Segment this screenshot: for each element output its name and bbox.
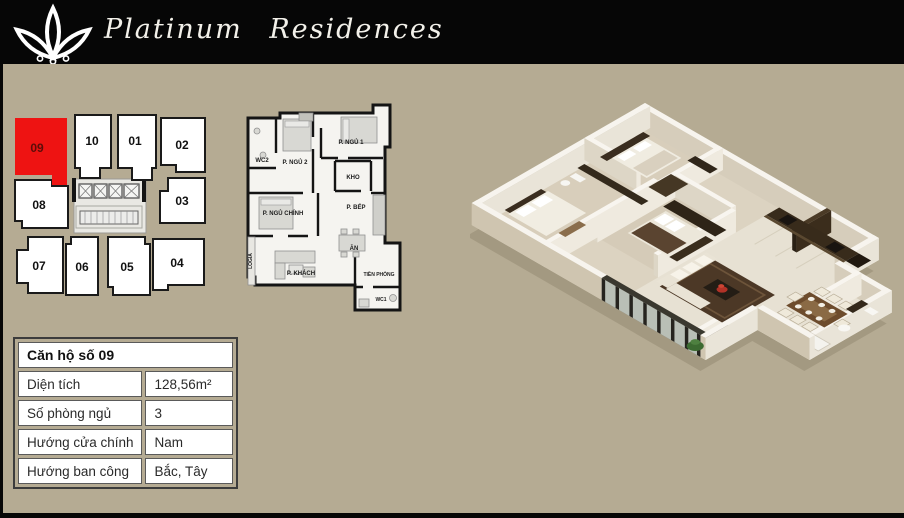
spec-value-door-direction: Nam [145, 429, 233, 455]
unit-08-label[interactable]: 08 [32, 198, 46, 212]
page-title: Platinum Residences [104, 14, 444, 45]
room-label-living: P. KHÁCH [287, 270, 315, 277]
spec-label-bedrooms: Số phòng ngủ [18, 400, 142, 426]
spec-value-area: 128,56m² [145, 371, 233, 397]
table-row: Diện tích 128,56m² [18, 371, 233, 397]
unit-01-label[interactable]: 01 [128, 134, 142, 148]
page: Platinum Residences [0, 0, 904, 518]
table-header-row: Căn hộ số 09 [18, 342, 233, 368]
footer-bar [0, 513, 904, 518]
unit-03-label[interactable]: 03 [175, 194, 189, 208]
unit-06-label[interactable]: 06 [75, 260, 89, 274]
unit-09-label[interactable]: 09 [30, 141, 44, 155]
building-key-plan: 09 10 01 02 08 03 07 06 05 04 [8, 92, 208, 305]
floor-plan-3d-render [470, 80, 900, 390]
room-label-wc2: WC2 [255, 158, 269, 164]
room-label-storage: KHO [346, 175, 360, 181]
table-row: Hướng ban công Bắc, Tây [18, 458, 233, 484]
room-label-logia: LOGIA [248, 253, 254, 269]
table-row: Số phòng ngủ 3 [18, 400, 233, 426]
table-row: Hướng cửa chính Nam [18, 429, 233, 455]
unit-05-label[interactable]: 05 [120, 260, 134, 274]
unit-02-label[interactable]: 02 [175, 138, 189, 152]
room-label-bedroom1: P. NGỦ 1 [339, 139, 365, 146]
unit-04-label[interactable]: 04 [170, 256, 184, 270]
room-label-bedroom2: P. NGỦ 2 [283, 159, 309, 166]
room-label-entrance: TIỀN PHÒNG [363, 270, 394, 278]
header-bar: Platinum Residences [0, 0, 904, 64]
room-label-kitchen: P. BẾP [347, 204, 366, 211]
spec-label-door-direction: Hướng cửa chính [18, 429, 142, 455]
room-label-dining: ĂN [350, 245, 359, 252]
spec-value-bedrooms: 3 [145, 400, 233, 426]
elevator-core [72, 178, 146, 233]
lotus-icon [6, 2, 100, 64]
unit-10-label[interactable]: 10 [85, 134, 99, 148]
apartment-info-table: Căn hộ số 09 Diện tích 128,56m² Số phòng… [13, 337, 238, 489]
spec-value-balcony-direction: Bắc, Tây [145, 458, 233, 484]
floor-plan-2d: WC2 P. NGỦ 2 P. NGỦ 1 KHO P. NGỦ CHÍNH P… [243, 93, 413, 318]
spec-label-area: Diện tích [18, 371, 142, 397]
apartment-title: Căn hộ số 09 [18, 342, 233, 368]
room-label-master-bedroom: P. NGỦ CHÍNH [263, 209, 304, 217]
room-label-wc1: WC1 [375, 297, 386, 303]
unit-07-label[interactable]: 07 [32, 259, 46, 273]
left-border [0, 64, 3, 518]
spec-label-balcony-direction: Hướng ban công [18, 458, 142, 484]
